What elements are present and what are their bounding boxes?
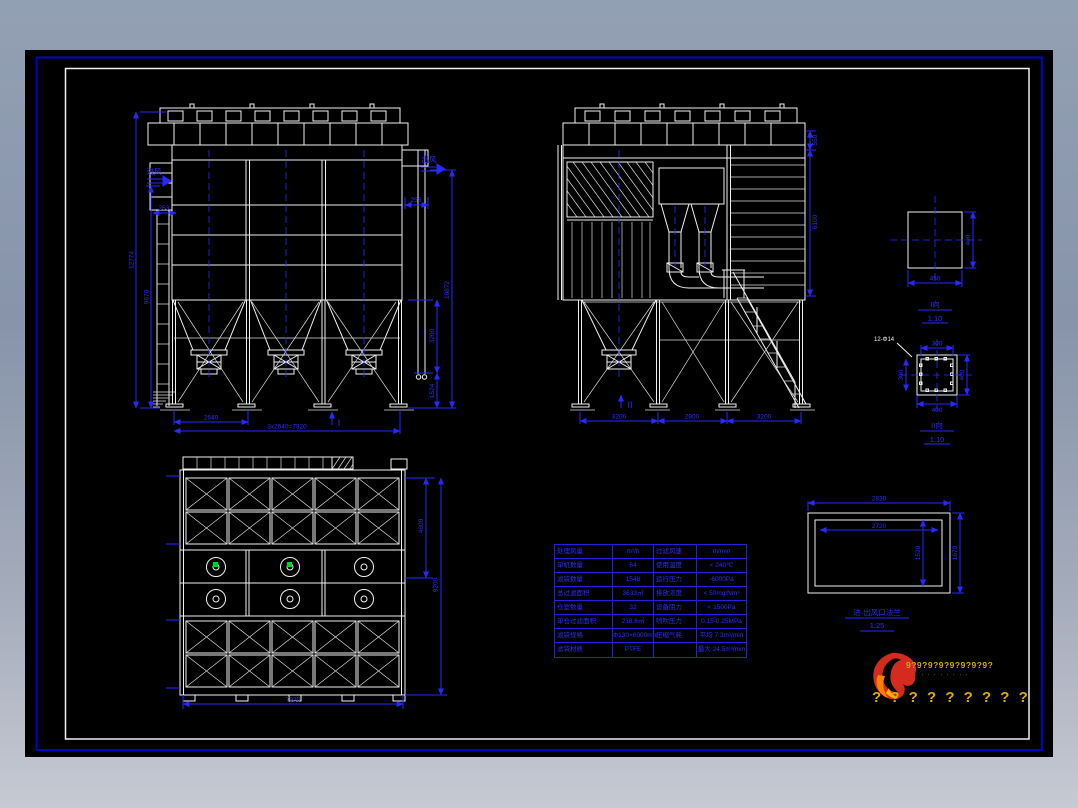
- spec-value: Φ130×6000mm: [613, 629, 654, 643]
- dim-plan-depth: 9200: [433, 577, 440, 592]
- spec-value: 218.6㎡: [613, 615, 654, 629]
- spec-label: 使用温度: [654, 559, 697, 573]
- inlet-label: 进风: [147, 167, 162, 176]
- spec-value: 1548: [613, 573, 654, 587]
- dim-hopper-height: 3200: [429, 328, 436, 343]
- dim-outlet-offset: 253: [411, 197, 422, 204]
- detail2-dim-top: 300: [932, 341, 943, 348]
- detail2-scale: 1:10: [930, 435, 945, 444]
- dim-inlet-offset: 253: [159, 205, 170, 212]
- spec-label: 排放浓度: [654, 587, 697, 601]
- spec-value: < 240℃: [697, 559, 746, 573]
- dim-side-bay2: 2800: [685, 414, 700, 421]
- spec-label: 运行压力: [654, 573, 697, 587]
- spec-value: < 1500Pa: [697, 601, 746, 615]
- logo-text-line3: ? ? ? ? ? ? ? ? ?: [872, 689, 1030, 706]
- dim-overall-height: 12774: [129, 251, 136, 269]
- detail1-dim-width: 450: [930, 276, 941, 283]
- dim-plan-half-depth: 4600: [418, 518, 425, 533]
- dim-total-width: 3x2640=7920: [267, 424, 307, 431]
- spec-label: 单仓过滤面积: [555, 615, 613, 629]
- spec-label: 设备阻力: [654, 601, 697, 615]
- spec-label: 滤袋规格: [555, 629, 613, 643]
- spec-label: 喷吹压力: [654, 615, 697, 629]
- spec-value: m/min: [697, 545, 746, 559]
- dim-plan-width: 7920: [286, 697, 301, 704]
- flange-scale: 1:25: [870, 621, 885, 630]
- detail2-dim-left: 300: [898, 369, 905, 380]
- spec-value: PTFE: [613, 643, 654, 657]
- dim-side-bay1: 3200: [612, 414, 627, 421]
- spec-value: 0.15-0.25MPa: [697, 615, 746, 629]
- dim-side-body-height: 6100: [812, 214, 819, 229]
- spec-value: 3633㎡: [613, 587, 654, 601]
- spec-label: 滤袋数量: [555, 573, 613, 587]
- detail2-dim-right: 400: [959, 369, 966, 380]
- spec-label: 滤袋材质: [555, 643, 613, 657]
- plan-marker-green-1: [213, 562, 218, 567]
- spec-label: 总过滤面积: [555, 587, 613, 601]
- cad-drawing: 12774 9670 253 253 10872 3200 1524 2640 …: [0, 0, 1078, 808]
- spec-label: 仓室数量: [555, 601, 613, 615]
- detail1-caption: I向: [930, 299, 940, 309]
- dim-right-height: 10872: [444, 281, 451, 299]
- section-mark-1: I: [338, 418, 341, 428]
- plan-marker-green-2: [287, 562, 292, 567]
- detail2-caption: II向: [931, 420, 943, 430]
- logo-text-line2: ' ' ' ' ' ' ' ' ' ': [909, 674, 969, 680]
- flange-dim-outer-h: 1670: [952, 545, 959, 560]
- dim-roof-height: 550: [812, 134, 819, 145]
- dim-side-bay3: 3200: [757, 414, 772, 421]
- spec-value: 最大 24.5m³/min: [697, 643, 746, 657]
- spec-value: 平均 7.3m³/min: [697, 629, 746, 643]
- spec-table: 处理风量 m³/h 过滤风速 m/min 单机数量 64 使用温度 < 240℃…: [554, 544, 747, 658]
- spec-value: -6000Pa: [697, 573, 746, 587]
- flange-caption: 进·出风口法兰: [853, 607, 901, 617]
- section-mark-2: II: [627, 400, 632, 410]
- spec-label: [654, 643, 697, 657]
- spec-label: 过滤风速: [654, 545, 697, 559]
- spec-value: m³/h: [613, 545, 654, 559]
- dim-bay-width: 2640: [204, 415, 219, 422]
- spec-label: 单机数量: [555, 559, 613, 573]
- outlet-label: 出风: [422, 154, 437, 164]
- spec-value: 64: [613, 559, 654, 573]
- detail2-dim-bottom: 400: [932, 407, 943, 414]
- spec-value: < 50mg/Nm³: [697, 587, 746, 601]
- spec-label: 处理风量: [555, 545, 613, 559]
- app-window: 12774 9670 253 253 10872 3200 1524 2640 …: [0, 0, 1078, 808]
- logo-text-line1: 9?9?9?9?9?9?9?9?: [906, 660, 993, 670]
- spec-value: 32: [613, 601, 654, 615]
- detail2-bolt-note: 12-Φ14: [874, 337, 895, 343]
- detail1-dim-height: 400: [965, 234, 972, 245]
- dim-leg-height: 1524: [429, 383, 436, 398]
- flange-dim-inner-h: 1520: [915, 545, 922, 560]
- flange-dim-outer-w: 2820: [872, 496, 887, 503]
- flange-dim-inner-w: 2720: [872, 523, 887, 530]
- detail1-scale: 1:10: [928, 314, 943, 323]
- spec-label: 压缩气耗: [654, 629, 697, 643]
- dim-body-height: 9670: [144, 289, 151, 304]
